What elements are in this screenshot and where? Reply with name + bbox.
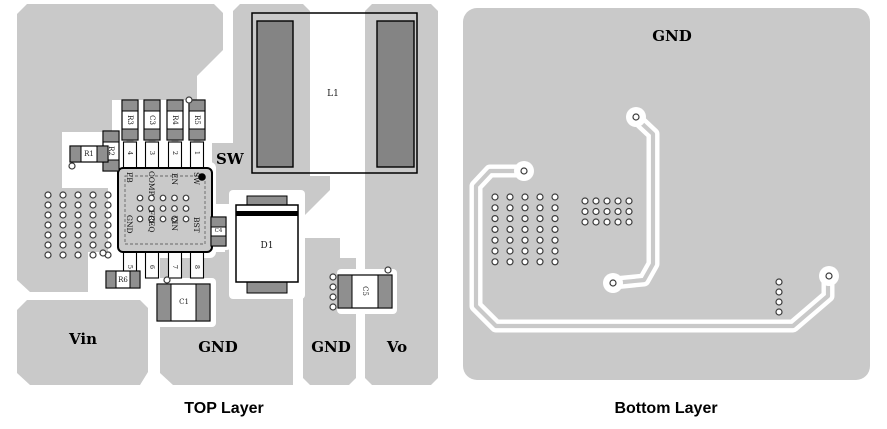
via: [60, 212, 66, 218]
refdes-c4: C4: [215, 228, 223, 234]
component-r5: R5: [189, 100, 205, 140]
pin-number: 4: [126, 151, 134, 155]
via: [60, 222, 66, 228]
via: [492, 259, 498, 265]
via: [385, 267, 391, 273]
pin-number: 2: [171, 151, 179, 155]
via: [582, 209, 588, 215]
net-label-gnd1: GND: [198, 338, 238, 356]
component-c1: C1: [157, 284, 210, 321]
via: [537, 259, 543, 265]
via: [552, 194, 558, 200]
via: [330, 274, 336, 280]
pcb-layout-figure: L1 4 3 2 1 5 6 7 8: [0, 0, 887, 429]
via: [776, 289, 782, 295]
component-l1: L1: [252, 13, 417, 173]
via: [60, 202, 66, 208]
pin-number: 7: [171, 265, 179, 269]
via: [45, 242, 51, 248]
via: [826, 273, 832, 279]
l1-pad-right: [377, 21, 414, 167]
refdes-r3: R3: [126, 115, 134, 125]
via: [507, 226, 513, 232]
via: [69, 163, 75, 169]
pin-label-comp: COMP: [147, 171, 156, 196]
top-layer-board: L1 4 3 2 1 5 6 7 8: [17, 4, 438, 385]
via: [507, 216, 513, 222]
via: [776, 279, 782, 285]
via: [626, 198, 632, 204]
via: [582, 198, 588, 204]
via: [522, 226, 528, 232]
via: [604, 198, 610, 204]
via: [60, 242, 66, 248]
via: [522, 248, 528, 254]
via: [537, 237, 543, 243]
via: [105, 232, 111, 238]
refdes-c1: C1: [179, 298, 189, 306]
via: [593, 219, 599, 225]
pin-number: 5: [126, 265, 134, 269]
net-label-gnd-bottom: GND: [652, 27, 692, 45]
pcb-drawing: L1 4 3 2 1 5 6 7 8: [0, 0, 887, 429]
via: [45, 192, 51, 198]
via: [552, 237, 558, 243]
via: [186, 97, 192, 103]
component-ic: FB COMP EN SW GND FREQ VIN BST: [118, 168, 212, 252]
via: [90, 232, 96, 238]
via: [522, 237, 528, 243]
pin-label-freq: FREQ: [147, 210, 156, 232]
via: [537, 205, 543, 211]
via: [593, 198, 599, 204]
via: [90, 202, 96, 208]
via: [552, 248, 558, 254]
via: [604, 219, 610, 225]
via: [626, 219, 632, 225]
pin-number: 1: [193, 151, 201, 155]
component-c4: C4: [211, 217, 226, 246]
via: [330, 284, 336, 290]
pin-label-gnd: GND: [125, 215, 134, 234]
via: [507, 259, 513, 265]
via: [507, 194, 513, 200]
component-d1: D1: [236, 196, 298, 293]
via: [75, 252, 81, 258]
via: [776, 299, 782, 305]
refdes-l1: L1: [327, 89, 339, 99]
via: [537, 216, 543, 222]
pin-label-fb: FB: [125, 172, 134, 183]
via: [522, 216, 528, 222]
via: [75, 222, 81, 228]
via: [615, 219, 621, 225]
via: [164, 277, 170, 283]
refdes-d1: D1: [261, 241, 274, 251]
via: [105, 212, 111, 218]
via: [45, 232, 51, 238]
via: [90, 222, 96, 228]
via: [492, 226, 498, 232]
via: [75, 232, 81, 238]
via: [522, 194, 528, 200]
via: [507, 205, 513, 211]
top-layer-title: TOP Layer: [8, 400, 440, 418]
via: [45, 222, 51, 228]
component-c5: C5: [338, 275, 392, 308]
via: [60, 252, 66, 258]
d1-cathode-band: [236, 211, 298, 216]
via: [183, 195, 189, 201]
via: [90, 212, 96, 218]
via: [522, 205, 528, 211]
via: [90, 242, 96, 248]
pin-label-bst: BST: [192, 217, 201, 233]
refdes-r4: R4: [171, 115, 179, 125]
via: [45, 252, 51, 258]
via: [160, 206, 166, 212]
via: [183, 216, 189, 222]
via: [522, 259, 528, 265]
refdes-r6: R6: [118, 276, 128, 284]
via: [105, 242, 111, 248]
via: [615, 198, 621, 204]
via: [593, 209, 599, 215]
via: [45, 212, 51, 218]
via: [552, 226, 558, 232]
via: [776, 309, 782, 315]
pin-label-sw: SW: [192, 172, 201, 185]
via: [492, 194, 498, 200]
via: [137, 216, 143, 222]
via: [604, 209, 610, 215]
via: [172, 195, 178, 201]
refdes-c5: C5: [361, 286, 369, 296]
via: [160, 216, 166, 222]
via: [105, 192, 111, 198]
via: [90, 252, 96, 258]
via: [507, 248, 513, 254]
via: [105, 222, 111, 228]
via: [492, 248, 498, 254]
via: [75, 242, 81, 248]
via: [537, 226, 543, 232]
pin-label-vin: VIN: [170, 215, 179, 231]
via: [521, 168, 527, 174]
via: [75, 202, 81, 208]
via: [552, 205, 558, 211]
via: [160, 195, 166, 201]
refdes-c3: C3: [148, 115, 156, 125]
via: [45, 202, 51, 208]
refdes-r5: R5: [193, 115, 201, 125]
component-r1: R1: [70, 146, 108, 162]
via: [75, 192, 81, 198]
component-c3: C3: [144, 100, 160, 140]
via: [615, 209, 621, 215]
pin-number: 3: [148, 151, 156, 155]
bottom-layer-title: Bottom Layer: [452, 400, 880, 418]
net-label-gnd2: GND: [311, 338, 351, 356]
refdes-r1: R1: [84, 150, 94, 158]
via: [105, 202, 111, 208]
component-r4: R4: [167, 100, 183, 140]
bottom-layer-board: GND: [463, 8, 870, 380]
via: [183, 206, 189, 212]
via: [60, 192, 66, 198]
via: [492, 237, 498, 243]
via: [330, 294, 336, 300]
via: [149, 195, 155, 201]
via: [75, 212, 81, 218]
via: [60, 232, 66, 238]
pin-number: 8: [193, 265, 201, 269]
via: [492, 216, 498, 222]
via: [610, 280, 616, 286]
via: [90, 192, 96, 198]
component-r6: R6: [106, 271, 140, 288]
via: [100, 250, 106, 256]
via: [172, 206, 178, 212]
pin-number: 6: [148, 265, 156, 269]
via: [552, 216, 558, 222]
via: [537, 248, 543, 254]
via: [330, 304, 336, 310]
via: [537, 194, 543, 200]
net-label-vin: Vin: [68, 330, 97, 348]
l1-pad-left: [257, 21, 293, 167]
pin-label-en: EN: [170, 173, 179, 185]
via: [633, 114, 639, 120]
via: [137, 206, 143, 212]
via: [552, 259, 558, 265]
via: [582, 219, 588, 225]
net-label-sw: SW: [216, 150, 245, 168]
via: [137, 195, 143, 201]
via: [626, 209, 632, 215]
via: [507, 237, 513, 243]
component-r3: R3: [122, 100, 138, 140]
via: [492, 205, 498, 211]
net-label-vo: Vo: [386, 338, 407, 356]
